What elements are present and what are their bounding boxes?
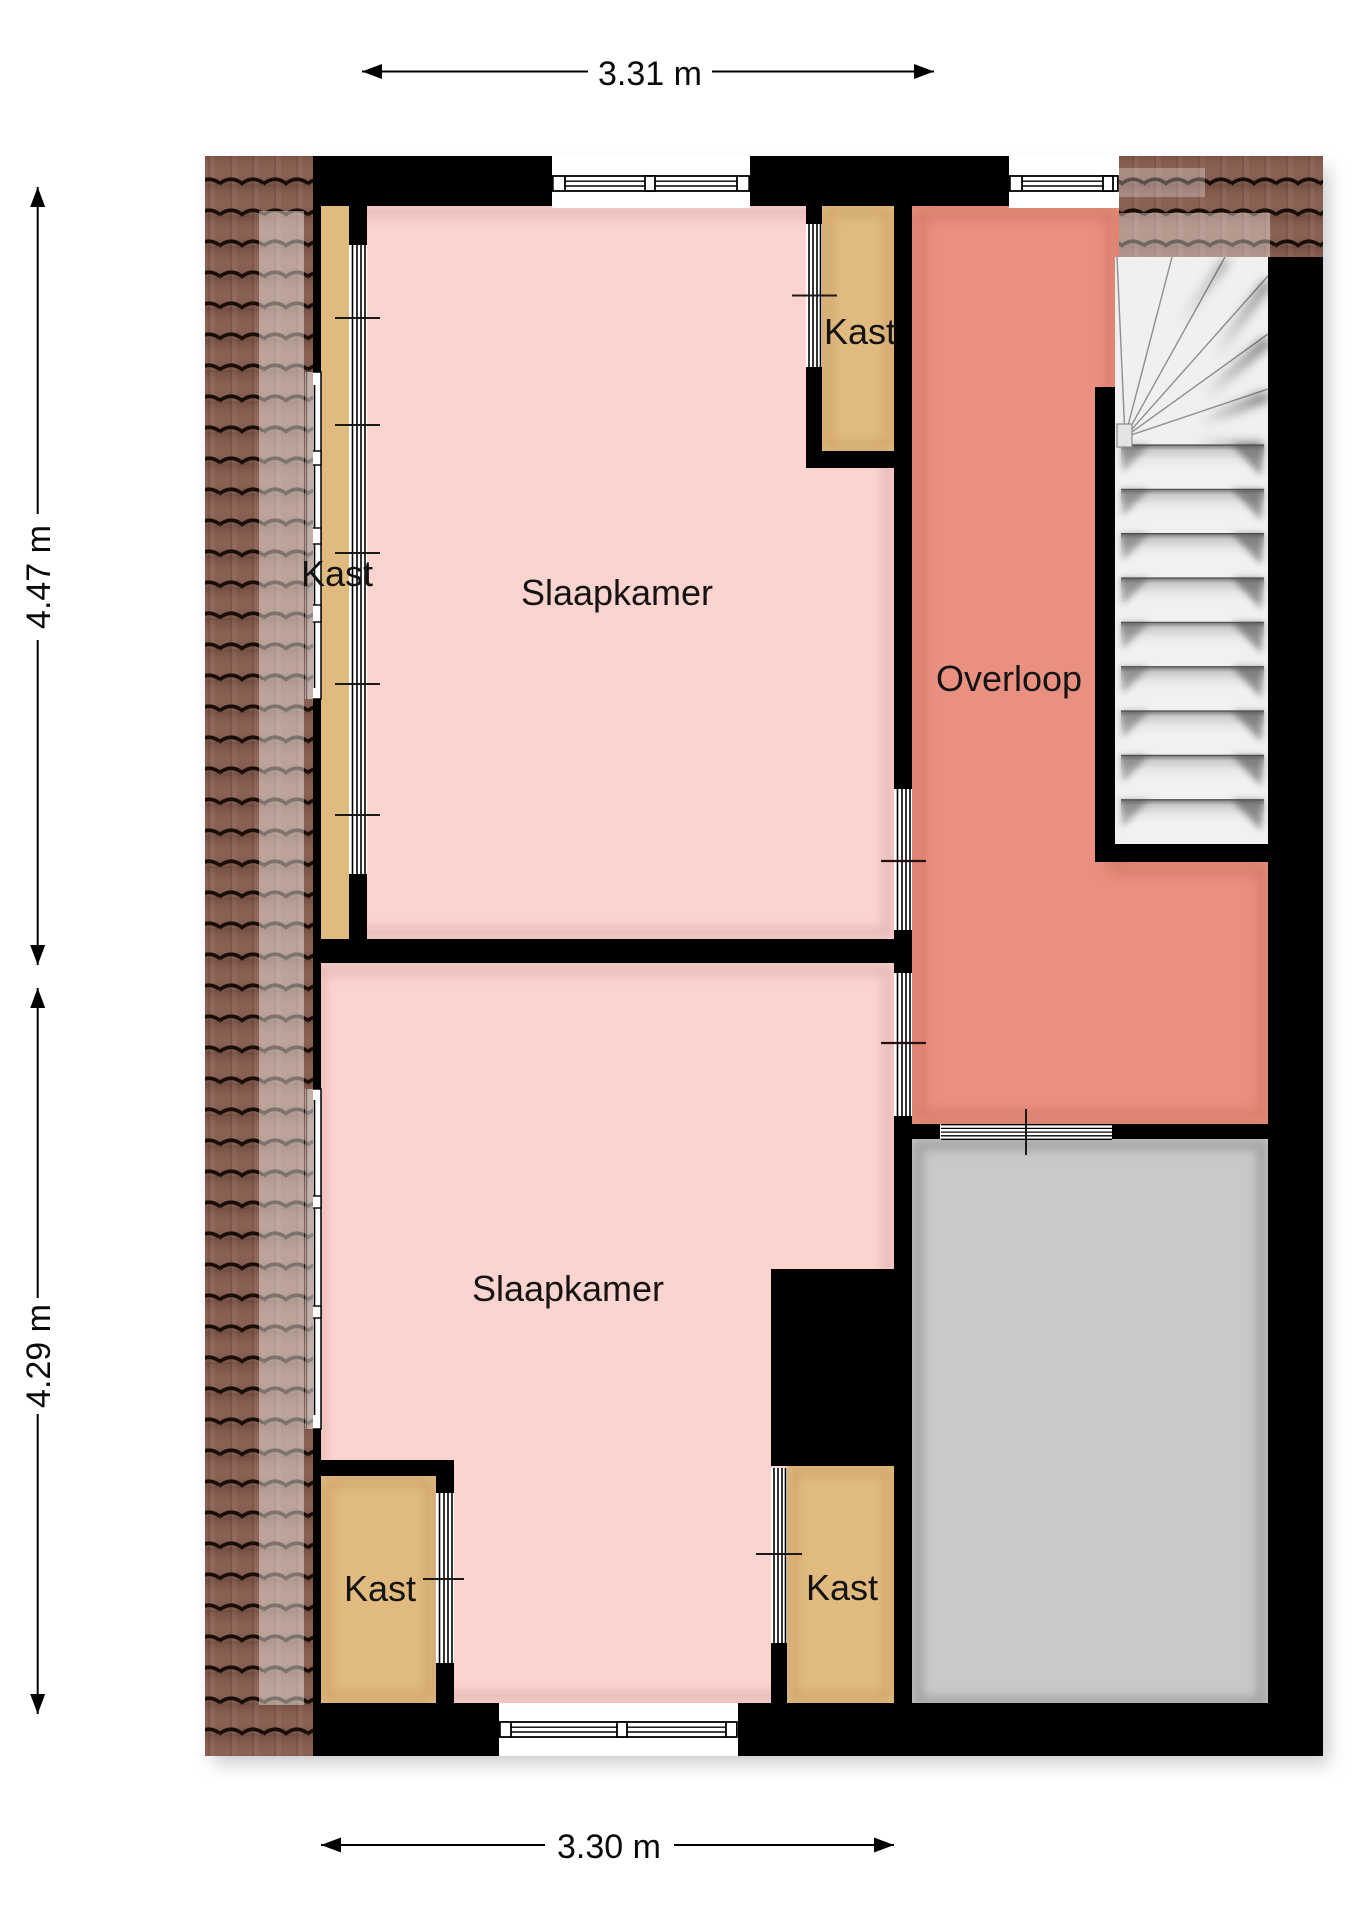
svg-text:Slaapkamer: Slaapkamer	[521, 572, 713, 613]
svg-text:Slaapkamer: Slaapkamer	[472, 1268, 664, 1309]
svg-text:4.47 m: 4.47 m	[20, 525, 58, 629]
svg-text:Kast: Kast	[824, 311, 896, 352]
svg-text:Kast: Kast	[806, 1567, 878, 1608]
svg-text:3.31 m: 3.31 m	[598, 55, 702, 93]
svg-text:Overloop: Overloop	[936, 658, 1082, 699]
svg-text:4.29 m: 4.29 m	[20, 1304, 58, 1408]
svg-text:3.30 m: 3.30 m	[557, 1828, 661, 1866]
svg-text:Kast: Kast	[301, 553, 373, 594]
svg-text:Kast: Kast	[344, 1568, 416, 1609]
